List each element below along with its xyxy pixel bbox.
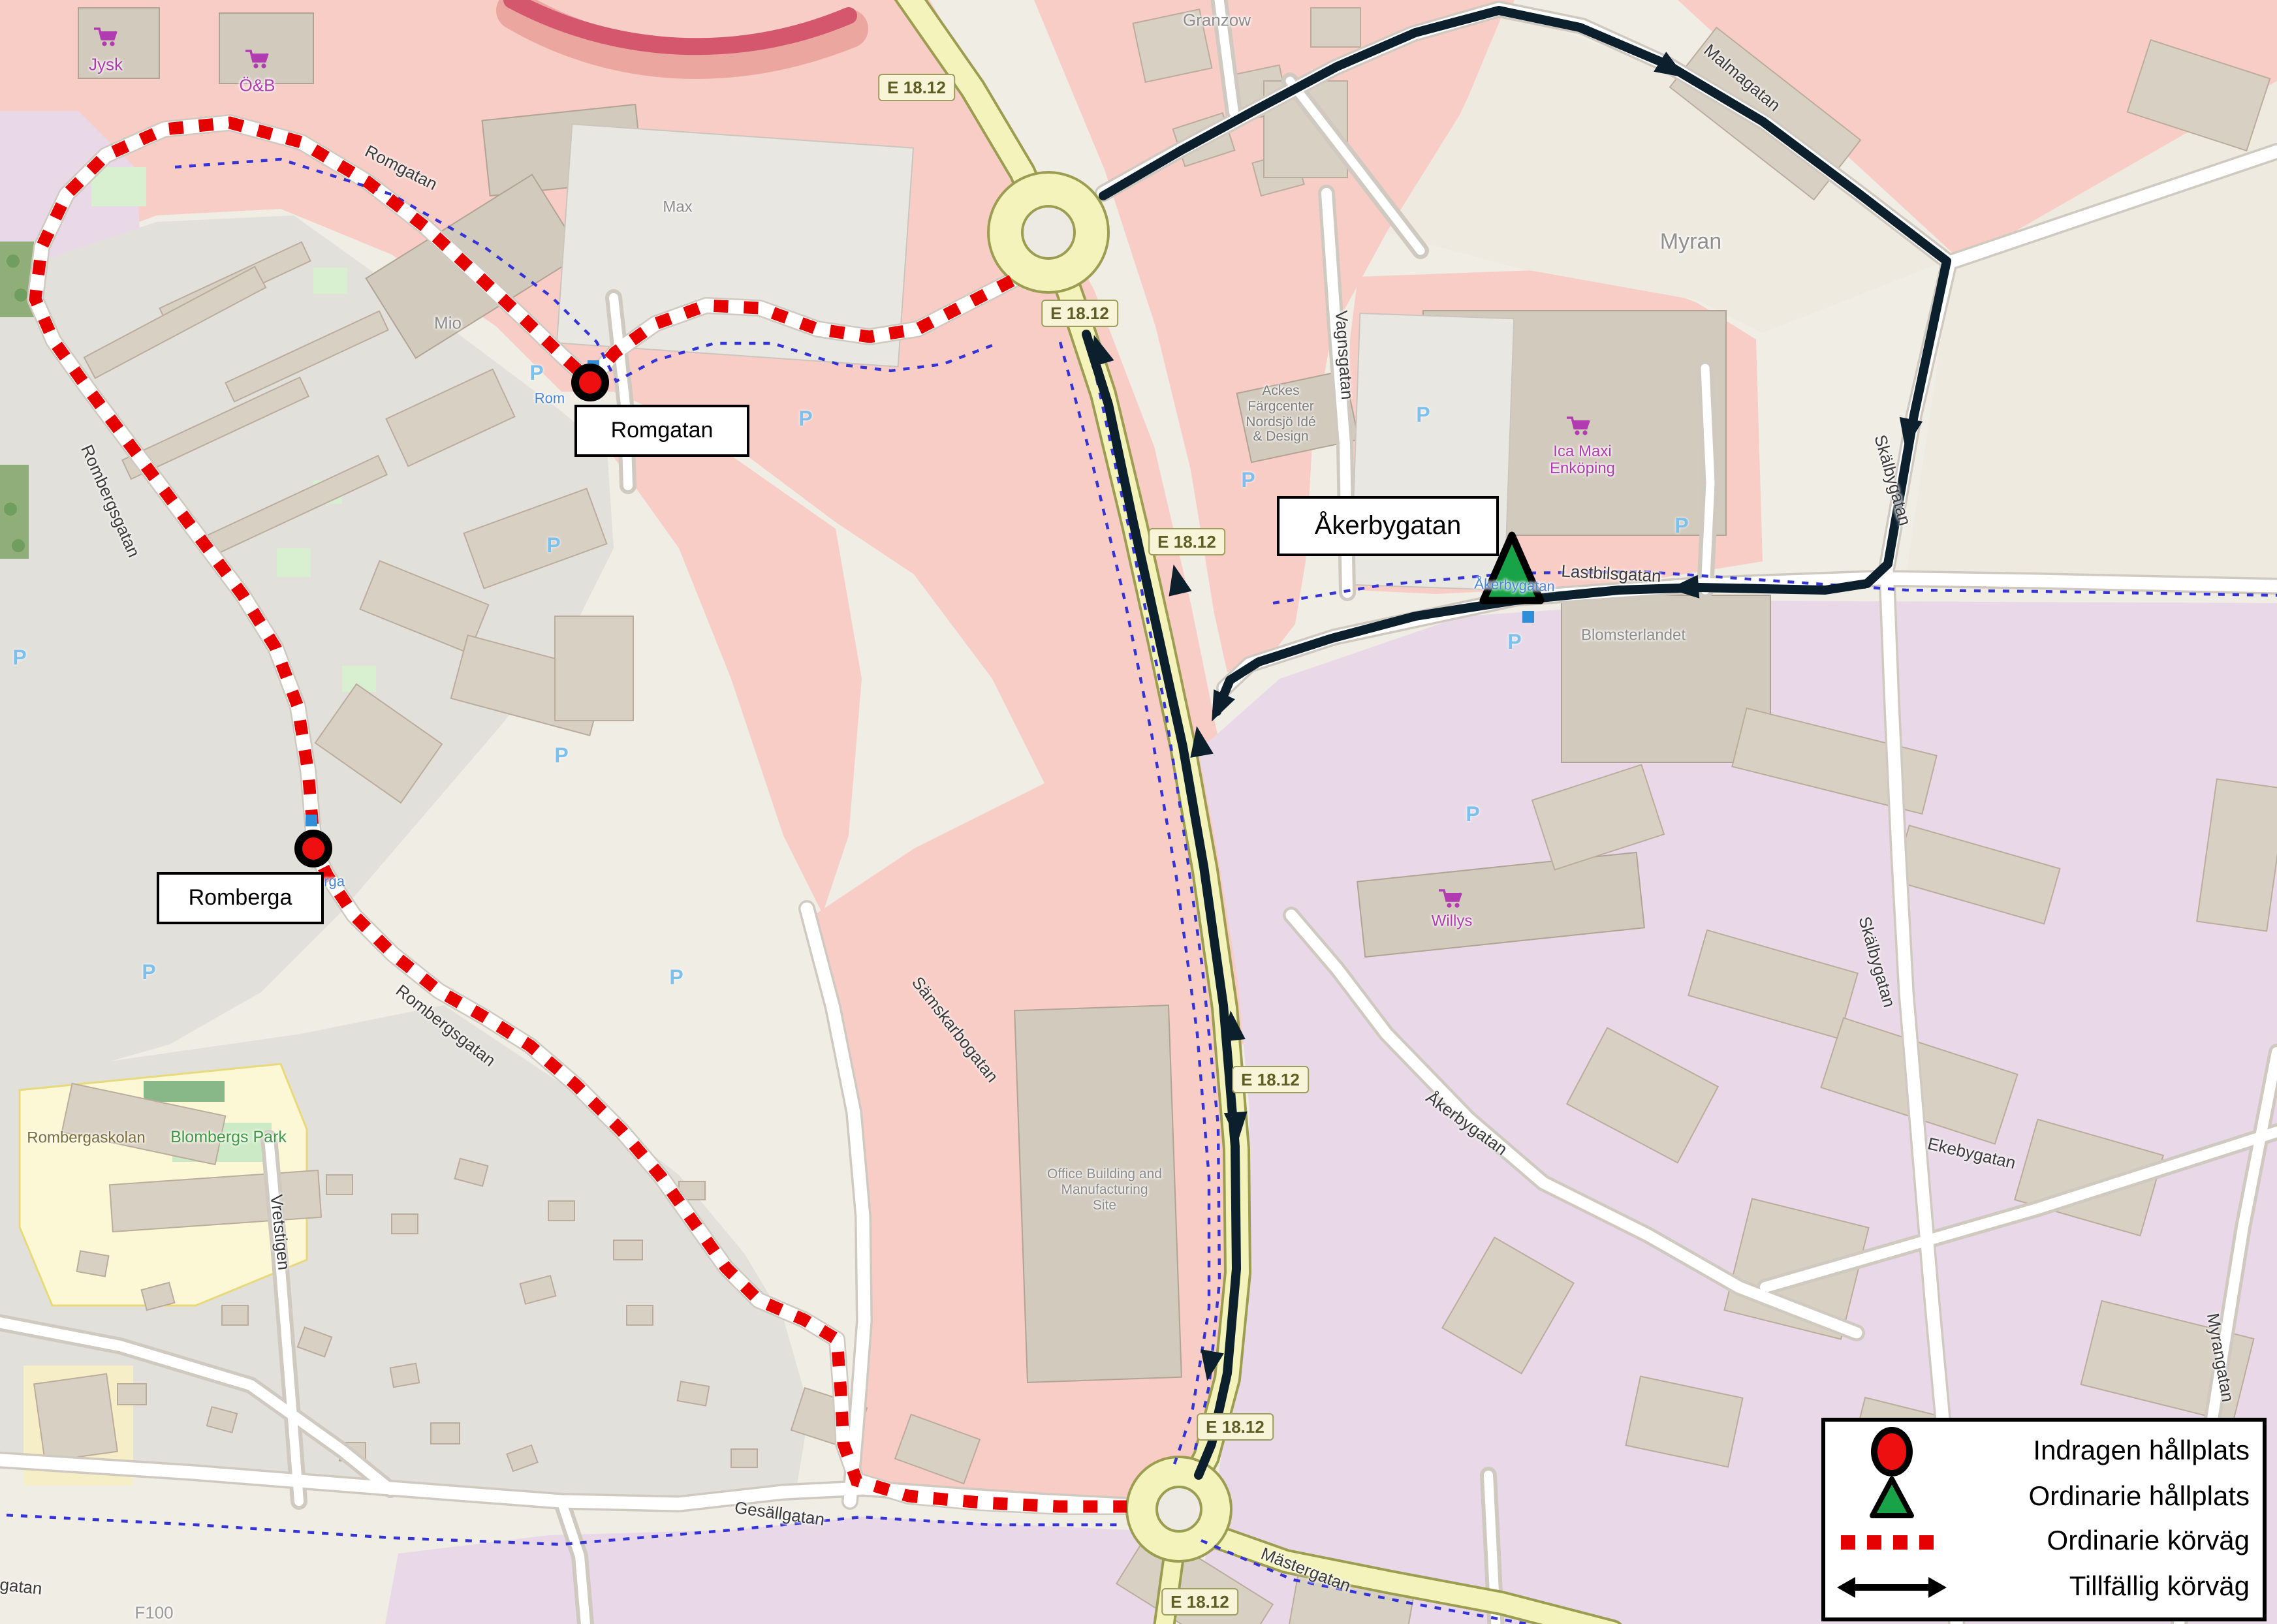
black-double-arrow-icon [1836,1573,1948,1602]
stop-label-text: Åkerbygatan [1315,511,1462,541]
building [614,1240,642,1260]
legend-label: Ordinarie hållplats [1948,1482,2250,1513]
legend-label: Tillfällig körväg [1948,1572,2250,1603]
bus-platform-square [1522,611,1534,623]
legend-label: Ordinarie körväg [1948,1527,2250,1558]
building [678,1381,710,1405]
legend-row-ordinary-stop: Ordinarie hållplats [1836,1475,2250,1520]
building [34,1374,118,1461]
map-legend: Indragen hållplats Ordinarie hållplats O… [1821,1418,2267,1621]
withdrawn-stop-icon [1836,1428,1948,1477]
building [326,1175,353,1195]
ordinary-stop-icon [1836,1475,1948,1520]
legend-row-withdrawn-stop: Indragen hållplats [1836,1430,2250,1475]
building [392,1214,418,1234]
building [431,1423,460,1444]
legend-row-ordinary-route: Ordinarie körväg [1836,1520,2250,1565]
roundabout-north [988,172,1108,292]
bus-platform-square [306,815,317,826]
building [118,1384,146,1405]
stop-label-box-romgatan: Romgatan [574,405,749,457]
building [390,1364,420,1387]
building [222,1305,248,1325]
stop-label-text: Romgatan [611,418,714,444]
legend-label: Indragen hållplats [1948,1437,2250,1468]
building [219,13,313,84]
withdrawn-stop-marker-romgatan [575,367,605,398]
legend-row-temporary-route: Tillfällig körväg [1836,1565,2250,1610]
building [1311,8,1360,47]
map-canvas[interactable] [0,0,2277,1624]
withdrawn-stop-marker-romberga [298,834,328,864]
stop-label-box-romberga: Romberga [157,872,324,924]
map-stage[interactable]: RomgatanRombergsgatanRombergsgatanSämska… [0,0,2277,1624]
red-dashed-line-icon [1836,1535,1948,1550]
building [731,1449,757,1467]
building [77,1251,109,1276]
building [78,8,159,78]
building [548,1201,574,1221]
stop-label-text: Romberga [189,885,292,911]
building [1014,1005,1182,1382]
building [555,616,633,721]
stop-label-box-akerbygatan: Åkerbygatan [1277,496,1499,556]
building [627,1305,653,1325]
